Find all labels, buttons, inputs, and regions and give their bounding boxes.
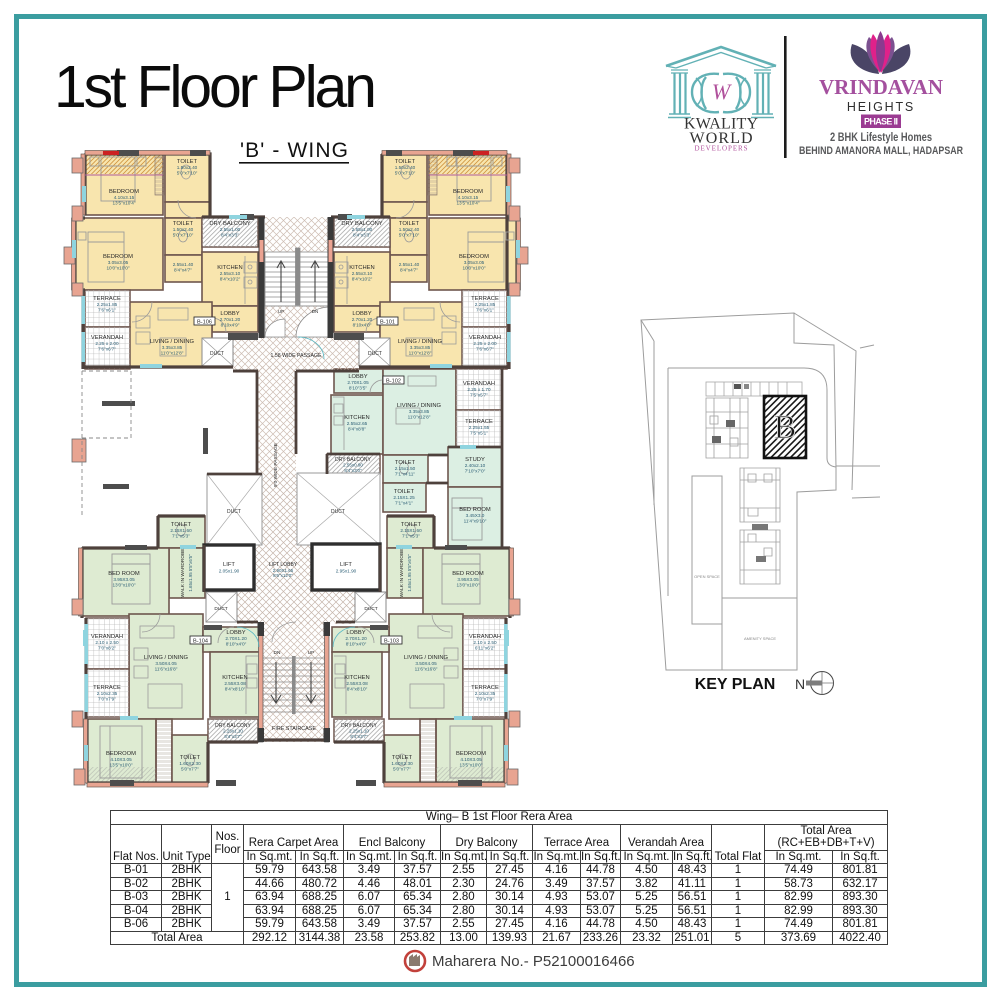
- svg-text:TOILET2.15X1.607'1"x5'3": TOILET2.15X1.607'1"x5'3": [170, 522, 192, 539]
- svg-text:VRINDAVAN: VRINDAVAN: [819, 75, 943, 99]
- svg-text:N: N: [795, 676, 805, 692]
- svg-text:TOILET2.15X1.607'1"x5'3": TOILET2.15X1.607'1"x5'3": [400, 522, 422, 539]
- svg-text:WALK IN WARDROBE: WALK IN WARDROBE: [399, 549, 405, 598]
- svg-text:Maharera No.- P52100016466: Maharera No.- P52100016466: [432, 953, 635, 970]
- svg-text:DUCT: DUCT: [210, 351, 224, 357]
- svg-text:DN: DN: [312, 309, 319, 314]
- svg-text:DUCT: DUCT: [331, 509, 345, 515]
- svg-text:B-103: B-103: [384, 639, 399, 645]
- svg-text:LOBBY2.70x1.208'10x4'0": LOBBY2.70x1.208'10x4'0": [352, 311, 373, 328]
- svg-text:DEVELOPERS: DEVELOPERS: [695, 145, 748, 153]
- svg-text:KITCHEN2.55x3.108'4"x10'2": KITCHEN2.55x3.108'4"x10'2": [217, 265, 242, 282]
- svg-text:TOILET1.50x2.405'0"x7'10": TOILET1.50x2.405'0"x7'10": [177, 159, 198, 176]
- svg-text:KEY PLAN: KEY PLAN: [695, 676, 776, 693]
- svg-text:TOILET2.15x1.507'1"x4'11": TOILET2.15x1.507'1"x4'11": [395, 460, 416, 477]
- svg-text:TOILET2.15X1.257'1"x4'1": TOILET2.15X1.257'1"x4'1": [393, 489, 415, 506]
- svg-text:BEDROOM4.10X3.0513'5"x10'0": BEDROOM4.10X3.0513'5"x10'0": [456, 751, 486, 768]
- svg-text:B-102: B-102: [386, 379, 401, 385]
- svg-text:TOILET1.50x2.405'0"x7'10": TOILET1.50x2.405'0"x7'10": [173, 221, 194, 238]
- svg-text:1.65x1.95 5'5"x6'5": 1.65x1.95 5'5"x6'5": [407, 554, 412, 592]
- svg-text:B-101: B-101: [380, 320, 395, 326]
- svg-text:DUCT: DUCT: [227, 509, 241, 515]
- svg-text:DUCT: DUCT: [368, 351, 382, 357]
- svg-text:2 BHK Lifestyle Homes: 2 BHK Lifestyle Homes: [830, 132, 932, 144]
- svg-text:DN: DN: [274, 650, 281, 656]
- svg-text:BEHIND AMANORA MALL, HADAPSAR: BEHIND AMANORA MALL, HADAPSAR: [799, 145, 963, 157]
- svg-text:FIRE STAIRCASE: FIRE STAIRCASE: [272, 726, 316, 732]
- svg-text:TOILET1.60X2.305'0"x7'7": TOILET1.60X2.305'0"x7'7": [391, 755, 413, 772]
- svg-text:1.65x1.95 5'5"x6'5": 1.65x1.95 5'5"x6'5": [188, 554, 193, 592]
- svg-text:KITCHEN2.55x3.108'4"x10'2": KITCHEN2.55x3.108'4"x10'2": [349, 265, 374, 282]
- svg-text:AMENITY SPACE: AMENITY SPACE: [744, 636, 776, 641]
- svg-text:2.55x1.408'4"x4'7": 2.55x1.408'4"x4'7": [173, 262, 194, 273]
- svg-text:'B' - WING: 'B' - WING: [240, 139, 348, 162]
- svg-text:LOBBY2.70X1.058'10"3'5": LOBBY2.70X1.058'10"3'5": [347, 374, 369, 391]
- svg-text:HEIGHTS: HEIGHTS: [847, 100, 915, 114]
- svg-text:B-106: B-106: [197, 320, 212, 326]
- svg-text:WALK IN WARDROBE: WALK IN WARDROBE: [180, 549, 186, 598]
- svg-text:9'0 WIDE PASSAGE: 9'0 WIDE PASSAGE: [273, 443, 279, 487]
- svg-text:B: B: [774, 409, 797, 446]
- svg-text:OPEN SPACE: OPEN SPACE: [694, 574, 720, 579]
- svg-text:KITCHEN2.55X3.088'4"x8'10": KITCHEN2.55X3.088'4"x8'10": [344, 675, 369, 692]
- svg-text:UP: UP: [278, 309, 284, 314]
- svg-text:DUCT: DUCT: [364, 606, 377, 612]
- svg-text:1.58 WIDE PASSAGE: 1.58 WIDE PASSAGE: [271, 353, 322, 359]
- svg-text:KITCHEN2.55X3.088'4"x8'10": KITCHEN2.55X3.088'4"x8'10": [222, 675, 247, 692]
- svg-text:LOBBY2.70x1.208'10x4'9": LOBBY2.70x1.208'10x4'9": [220, 311, 241, 328]
- svg-text:UP: UP: [308, 650, 315, 656]
- svg-text:2.55x1.408'4"x4'7": 2.55x1.408'4"x4'7": [399, 262, 420, 273]
- svg-text:PHASE II: PHASE II: [864, 117, 898, 127]
- svg-text:LOBBY2.70X1.208'10"x4'0": LOBBY2.70X1.208'10"x4'0": [225, 630, 247, 647]
- svg-text:W: W: [712, 79, 732, 104]
- svg-text:1st Floor Plan: 1st Floor Plan: [54, 54, 377, 120]
- svg-text:TOILET1.60X2.305'0"x7'7": TOILET1.60X2.305'0"x7'7": [179, 755, 201, 772]
- svg-text:STUDY2.40x2.107'10"x7'0": STUDY2.40x2.107'10"x7'0": [465, 457, 486, 474]
- svg-text:KITCHEN2.55x2.658'4"x8'8": KITCHEN2.55x2.658'4"x8'8": [344, 415, 369, 432]
- svg-text:TOILET1.50x2.405'0"x7'10": TOILET1.50x2.405'0"x7'10": [399, 221, 420, 238]
- svg-text:DUCT: DUCT: [214, 606, 227, 612]
- svg-text:LOBBY2.70X1.208'10"x4'0": LOBBY2.70X1.208'10"x4'0": [345, 630, 367, 647]
- svg-text:B-104: B-104: [193, 639, 208, 645]
- svg-text:BEDROOM4.10X3.0513'5"x10'0": BEDROOM4.10X3.0513'5"x10'0": [106, 751, 136, 768]
- svg-text:TOILET1.50x2.405'0"x7'10": TOILET1.50x2.405'0"x7'10": [395, 159, 416, 176]
